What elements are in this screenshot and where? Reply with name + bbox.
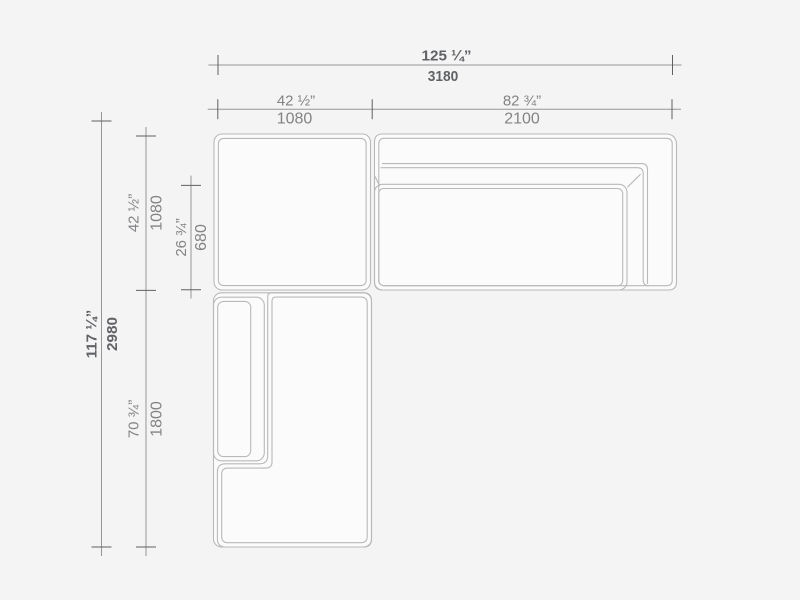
svg-text:1080: 1080 [277,111,313,128]
svg-text:82 ¾”: 82 ¾” [503,93,541,110]
svg-text:125 ¼”: 125 ¼” [422,48,472,65]
svg-text:3180: 3180 [428,68,459,85]
svg-text:1800: 1800 [148,401,165,437]
svg-text:680: 680 [193,224,210,251]
svg-text:70 ¾”: 70 ¾” [126,400,143,438]
svg-text:26 ¾”: 26 ¾” [173,218,190,256]
svg-text:2100: 2100 [504,111,540,128]
svg-text:42 ½”: 42 ½” [277,93,315,110]
svg-text:2980: 2980 [104,317,121,351]
svg-text:117 ¼”: 117 ¼” [83,310,100,359]
svg-text:42 ½”: 42 ½” [126,194,143,232]
svg-text:1080: 1080 [148,195,165,231]
